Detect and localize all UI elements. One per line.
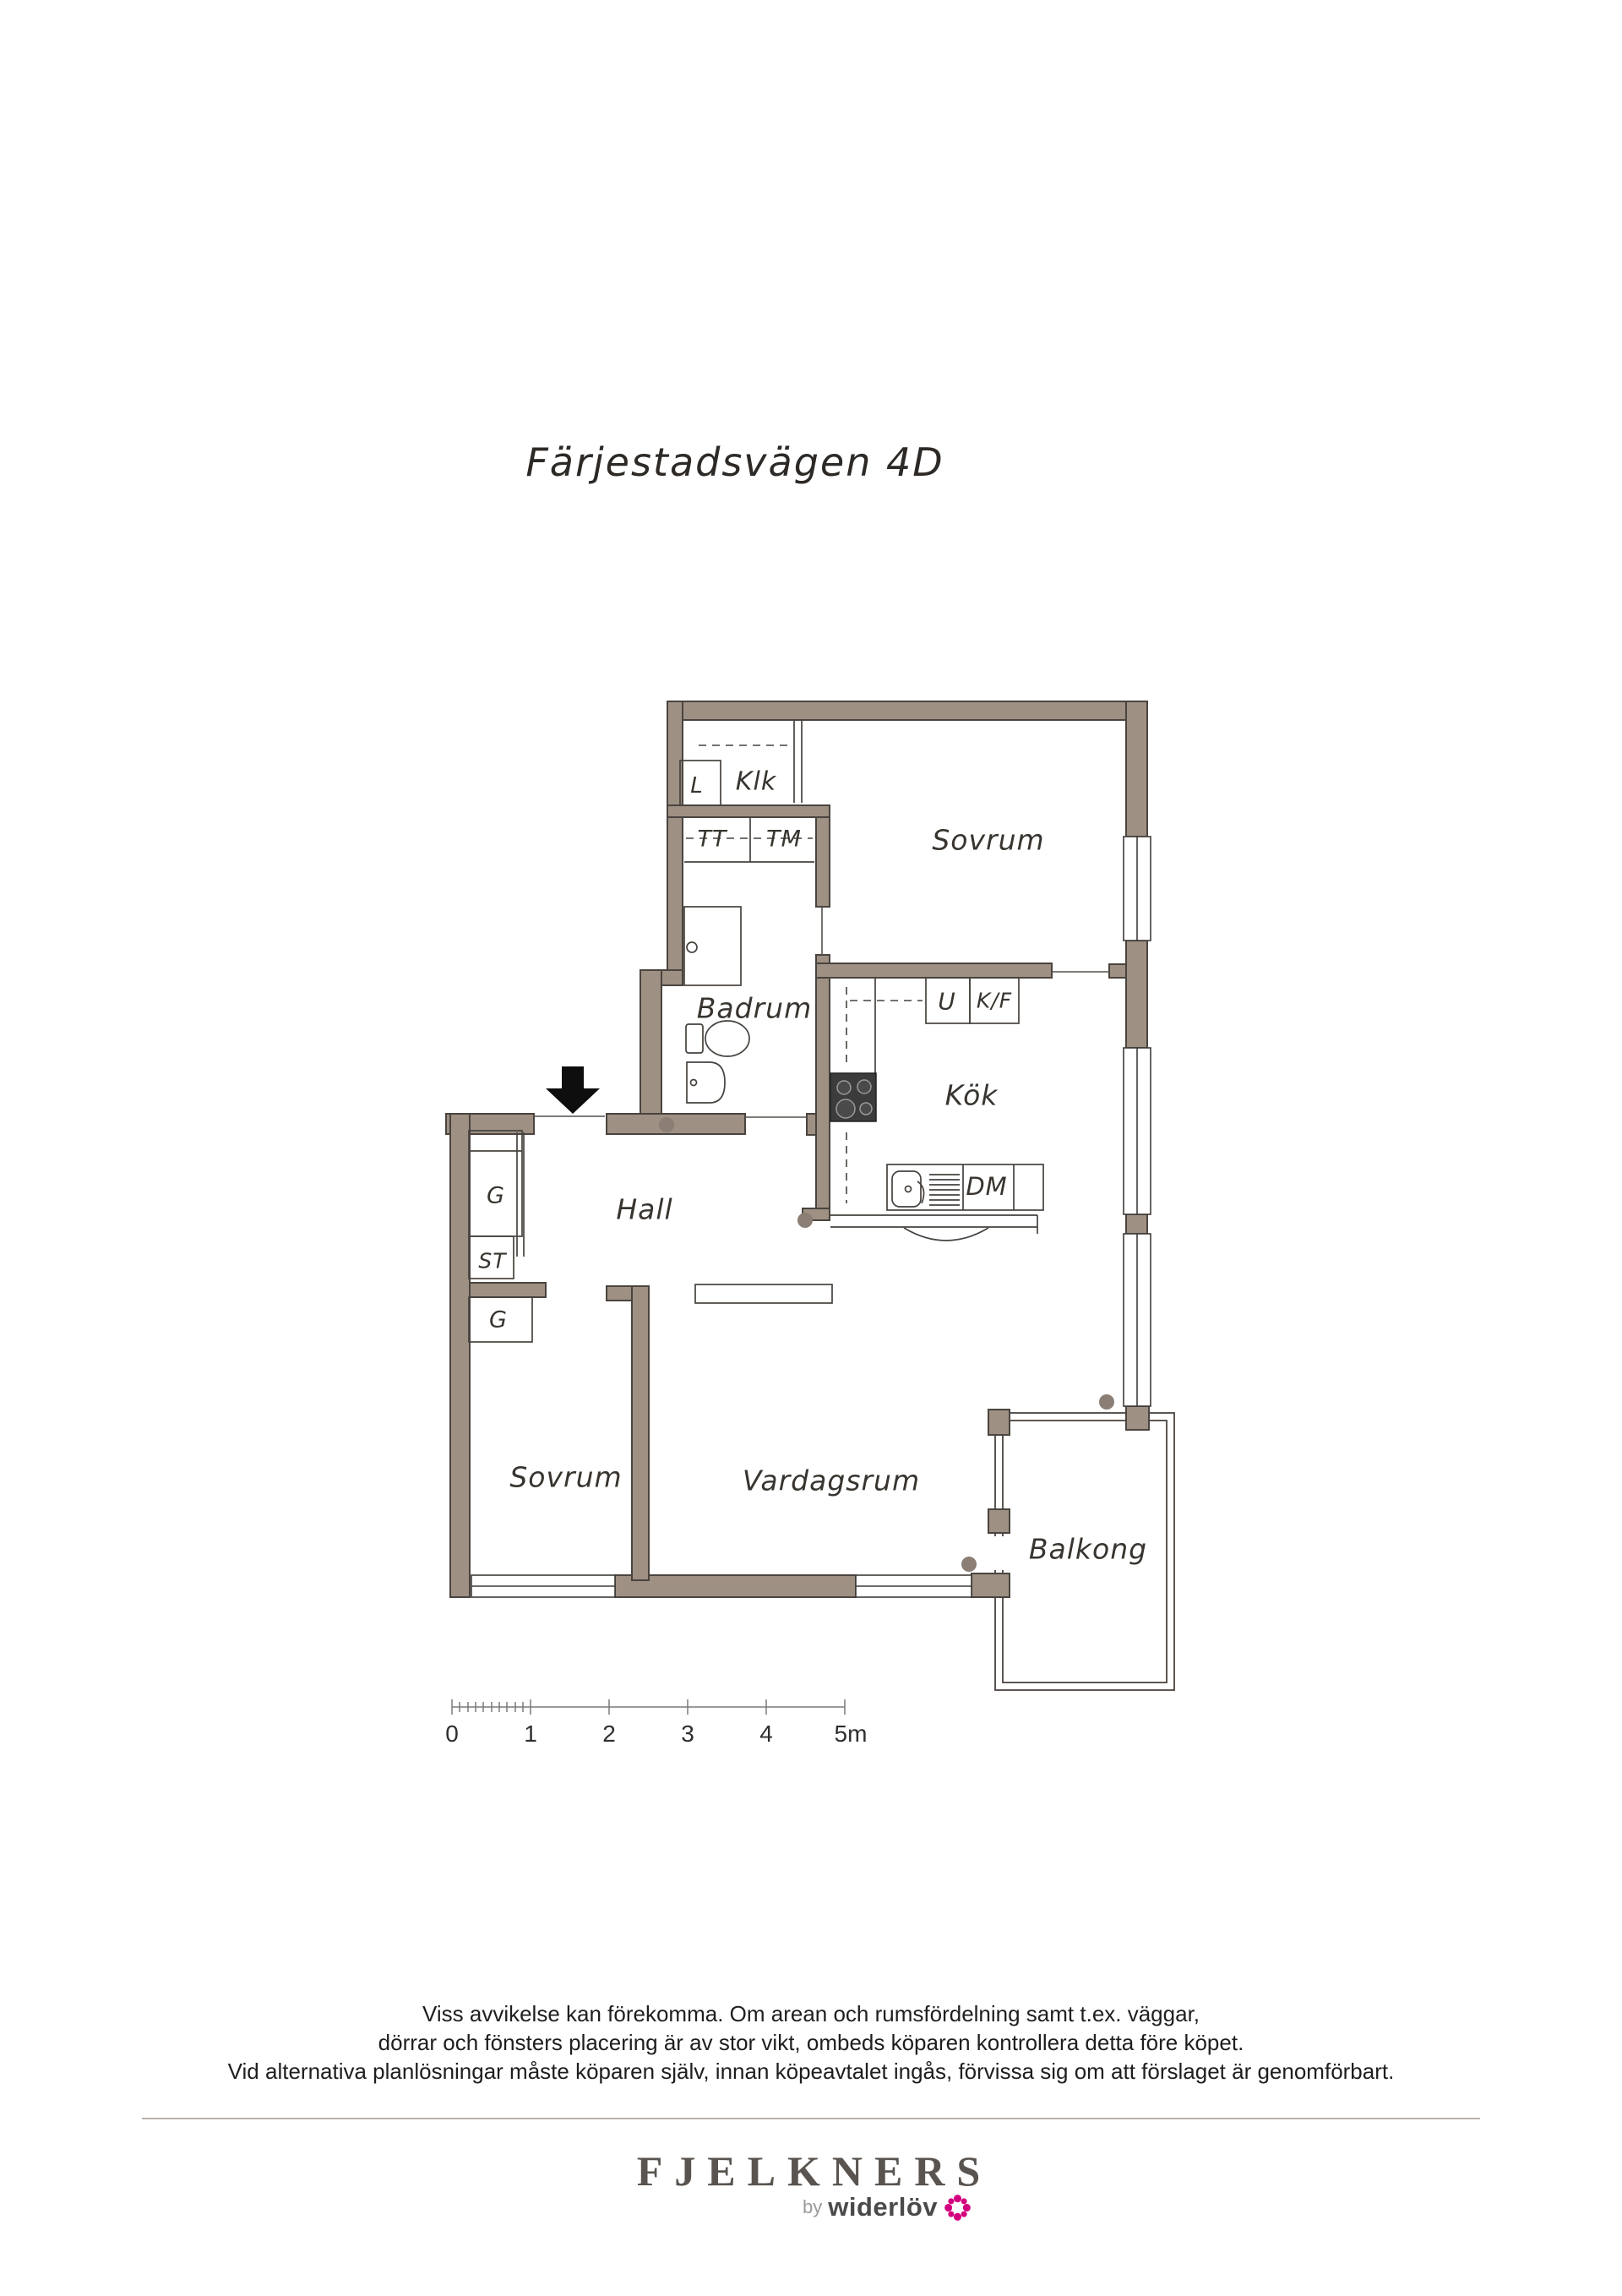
disclaimer-line-3: Vid alternativa planlösningar måste köpa… [0,2057,1622,2086]
room-label-sovrum-top: Sovrum [932,824,1044,857]
room-label-vardagsrum: Vardagsrum [743,1464,920,1497]
appliance-label-tm: TM [766,826,802,853]
scale-tick-5m: 5m [835,1721,868,1748]
scale-tick-4: 4 [759,1721,773,1748]
disclaimer-text: Viss avvikelse kan förekomma. Om arean o… [0,1999,1622,2086]
room-label-klk: Klk [736,767,776,797]
scale-tick-0: 0 [445,1721,459,1748]
closet-label-g-top: G [487,1183,505,1209]
closet-label-g-bottom: G [489,1307,508,1333]
entrance-arrow-icon [546,1066,600,1114]
byline-brand: widerlöv [828,2192,938,2222]
room-label-hall: Hall [616,1193,672,1226]
scale-tick-1: 1 [524,1721,537,1748]
appliance-label-u: U [938,988,956,1016]
room-label-kok: Kök [945,1079,999,1112]
closet-label-l: L [690,773,704,799]
closet-label-st: ST [478,1249,506,1273]
scale-bar [452,1699,845,1715]
scale-tick-2: 2 [602,1721,616,1748]
byline: by widerlöv [798,2192,972,2222]
widerlov-flower-icon [944,2194,972,2222]
appliance-label-dm: DM [966,1172,1007,1201]
byline-prefix: by [803,2196,822,2218]
stove-icon [830,1073,876,1121]
footer-separator [142,2118,1480,2119]
disclaimer-line-1: Viss avvikelse kan förekomma. Om arean o… [0,1999,1622,2028]
shower-icon [684,907,741,985]
room-label-badrum: Badrum [697,992,812,1025]
appliance-label-kf: K/F [977,989,1012,1013]
room-label-balkong: Balkong [1029,1533,1147,1566]
appliance-label-tt: TT [698,826,727,853]
disclaimer-line-2: dörrar och fönsters placering är av stor… [0,2028,1622,2057]
hall-divider [695,1284,832,1303]
brand-wordmark: FJELKNERS [308,2146,1321,2195]
room-label-sovrum-bottom: Sovrum [509,1461,622,1494]
kitchen-door-swing [904,1228,988,1241]
floorplan-page: { "page": { "title": "Färjestadsvägen 4D… [0,0,1622,2296]
washbasin-icon [687,1062,725,1103]
floor-drain-icon [687,942,697,952]
floorplan-drawing [0,0,1622,2296]
balcony-door-opening [990,1536,1009,1570]
scale-tick-3: 3 [681,1721,694,1748]
toilet-icon [686,1021,749,1056]
